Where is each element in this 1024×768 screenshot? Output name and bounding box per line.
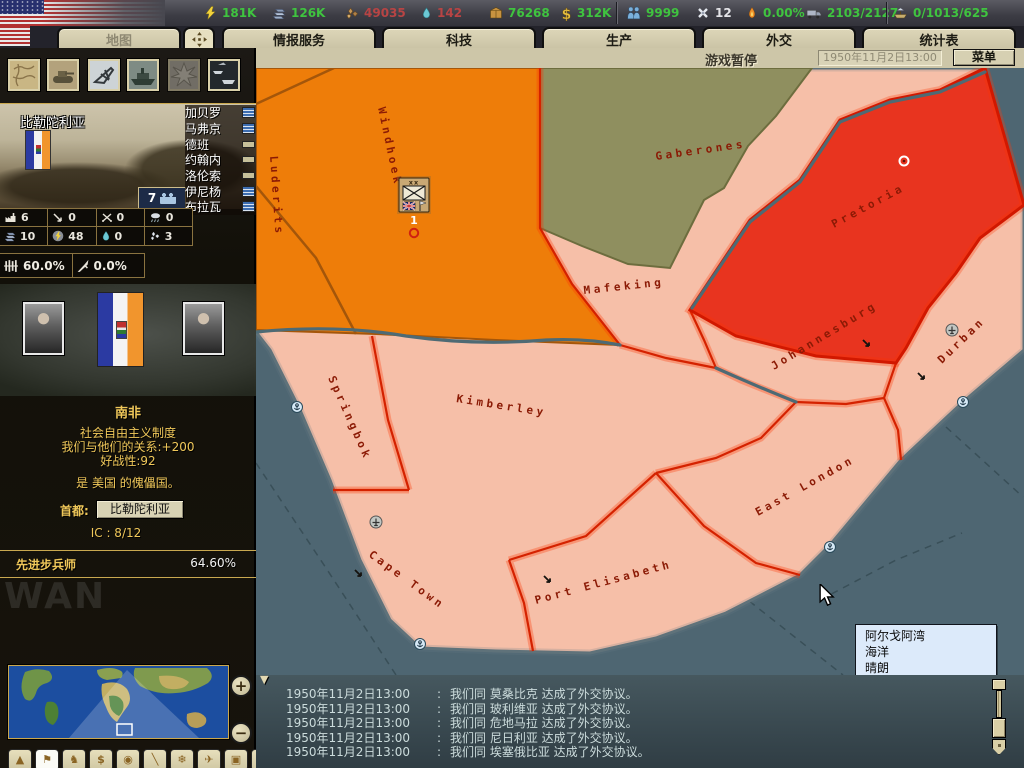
metal-icon	[272, 7, 286, 20]
pan-map-icon	[192, 32, 207, 47]
port-icon[interactable]	[958, 397, 969, 408]
tab-statistics[interactable]: 统计表	[862, 27, 1016, 50]
tab-pan-map[interactable]	[183, 27, 215, 50]
log-entry[interactable]: 1950年11月2日13:00:我们同 埃塞俄比亚 达成了外交协议。	[286, 743, 1006, 757]
country-belligerence: 好战性:92	[0, 452, 256, 469]
aa-gun-icon	[52, 212, 64, 223]
airbase-icon[interactable]	[946, 324, 958, 336]
tank-icon	[49, 61, 77, 89]
minimap-zoom-in-button[interactable]: +	[230, 675, 252, 697]
resource-transports: 12	[696, 4, 732, 22]
land-connection-icon	[242, 141, 255, 148]
air-icon: ✈	[204, 753, 213, 766]
resource-manpower: 9999	[626, 4, 679, 22]
resource-energy: 181K	[204, 4, 256, 22]
land-connection-icon	[242, 172, 255, 179]
revolt-risk-icon	[76, 259, 90, 273]
stat-oil: 0	[97, 227, 145, 246]
minister-portrait-right	[183, 302, 224, 355]
money-icon: $	[561, 6, 572, 21]
tab-technology[interactable]: 科技	[382, 27, 536, 50]
sea-zone-tooltip: 阿尔戈阿湾 海洋 晴朗	[855, 624, 997, 678]
main-tab-bar: 地图 情报服务 科技 生产 外交 统计表	[0, 26, 1024, 48]
tab-intelligence[interactable]: 情报服务	[222, 27, 376, 50]
research-progress: 64.60%	[190, 556, 236, 570]
log-scroll-track[interactable]	[996, 690, 1002, 718]
unit-count: 1	[410, 214, 418, 227]
port-icon[interactable]	[292, 402, 303, 413]
stat-revolt-risk: 0.0%	[73, 253, 146, 278]
convoy-ships-icon	[210, 61, 238, 89]
land-units-button[interactable]	[47, 59, 79, 91]
sea-connection-icon	[242, 123, 255, 134]
stat-metal: 10	[0, 227, 48, 246]
top-resource-bar: 181K 126K 49035 142 76268 $ 312K 9999	[0, 0, 1024, 27]
log-scroll-up-button[interactable]	[992, 679, 1006, 690]
mapmode-terrain-button[interactable]: ▲	[8, 749, 32, 768]
naval-units-button[interactable]	[127, 59, 159, 91]
battle-icon	[101, 212, 113, 223]
minimap-world	[9, 666, 228, 738]
message-log[interactable]: ▼ 1950年11月2日13:00:我们同 莫桑比克 达成了外交协议。 1950…	[256, 675, 1024, 768]
adjacent-province-list: 加贝罗 马弗京 德班 约翰内 洛伦索 伊尼杨 布拉瓦	[185, 105, 256, 215]
mapmode-air-button[interactable]: ✈	[197, 749, 221, 768]
province-infra-row: 60.0% 0.0%	[0, 253, 145, 278]
port-icon[interactable]	[415, 639, 426, 650]
convoys-icon	[893, 6, 908, 20]
map-viewport[interactable]: Windhoek Luderits Gaberones Pretoria Maf…	[256, 68, 1024, 675]
tooltip-terrain: 海洋	[865, 644, 996, 660]
resource-dissent: 0.00%	[746, 4, 805, 22]
stat-aa: 0	[48, 208, 96, 227]
adjacent-province-item[interactable]: 洛伦索	[185, 168, 256, 184]
transports-icon	[696, 6, 710, 20]
log-entry[interactable]: 1950年11月2日13:00:我们同 尼日利亚 达成了外交协议。	[286, 729, 1006, 743]
mapmode-weather-button[interactable]: ❄	[170, 749, 194, 768]
rare-materials-icon	[149, 231, 161, 242]
adjacent-province-item[interactable]: 布拉瓦	[185, 199, 256, 215]
resource-transport-capacity: 2103/2127	[806, 4, 898, 22]
tab-production[interactable]: 生产	[542, 27, 696, 50]
resource-metal: 126K	[272, 4, 325, 22]
log-entry[interactable]: 1950年11月2日13:00:我们同 玻利维亚 达成了外交协议。	[286, 700, 1006, 714]
capital-button[interactable]: 比勒陀利亚	[96, 500, 184, 519]
svg-text:$: $	[562, 6, 572, 20]
tab-diplomacy[interactable]: 外交	[702, 27, 856, 50]
province-stats: 6 0 0 0 10 48	[0, 208, 193, 246]
country-puppet-note: 是 美国 的傀儡国。	[0, 474, 256, 491]
mapmode-economy-button[interactable]: $	[89, 749, 113, 768]
terrain-icon: ▲	[16, 753, 24, 766]
division-count: 7	[148, 191, 156, 205]
supplies-icon	[489, 6, 503, 20]
tooltip-weather: 晴朗	[865, 660, 996, 676]
weather-icon: ❄	[177, 753, 186, 766]
tooltip-sea-name: 阿尔戈阿湾	[865, 628, 996, 644]
resource-rare-materials: 49035	[345, 4, 406, 22]
sea-connection-icon	[242, 186, 255, 197]
rare-materials-icon	[345, 7, 359, 20]
menu-button[interactable]: 菜单	[953, 49, 1015, 66]
convoys-button[interactable]	[208, 59, 240, 91]
stat-rare-materials: 3	[145, 227, 193, 246]
tab-map[interactable]: 地图	[57, 27, 181, 50]
country-name: 南非	[0, 402, 256, 421]
resource-supplies: 76268	[489, 4, 550, 22]
map-icon	[10, 61, 38, 89]
mapmode-supply-button[interactable]: ▣	[224, 749, 248, 768]
mapmode-army-button[interactable]: ♞	[62, 749, 86, 768]
mapmode-revolt-button[interactable]: ╲	[143, 749, 167, 768]
stat-battles: 0	[97, 208, 145, 227]
sea-connection-icon	[242, 201, 255, 212]
economy-icon: $	[97, 753, 105, 766]
transport-capacity-icon	[806, 6, 822, 20]
province-sidebar: 比勒陀利亚 7 加贝罗 马弗京 德班 约翰内 洛伦索 伊尼杨 布拉瓦 6	[0, 48, 256, 768]
adjacent-province-item[interactable]: 约翰内	[185, 152, 256, 168]
game-window: 181K 126K 49035 142 76268 $ 312K 9999	[0, 0, 1024, 768]
date-display: 1950年11月2日13:00	[818, 50, 942, 66]
map-view-button[interactable]	[8, 59, 40, 91]
factory-icon	[4, 212, 17, 223]
warship-icon	[129, 61, 157, 89]
topbar-separator	[616, 2, 617, 24]
topbar-separator	[886, 2, 887, 24]
mapmode-resources-button[interactable]: ◉	[116, 749, 140, 768]
log-scroll-handle[interactable]	[992, 718, 1006, 738]
land-connection-icon	[242, 156, 255, 163]
manpower-icon	[626, 6, 641, 20]
background-watermark: WAN	[4, 576, 106, 617]
infantry-icon	[160, 192, 176, 204]
battles-button[interactable]	[168, 59, 200, 91]
stat-energy: 48	[48, 227, 96, 246]
revolt-icon: ╲	[152, 753, 159, 766]
minimap-zoom-out-button[interactable]: −	[230, 722, 252, 744]
unit-flag-uk	[403, 202, 415, 210]
army-icon: ♞	[69, 753, 79, 766]
adjacent-province-item[interactable]: 马弗京	[185, 121, 256, 137]
battle-burst-icon	[170, 61, 198, 89]
supply-icon: ▣	[231, 753, 241, 766]
oil-icon	[421, 6, 432, 20]
metal-icon	[4, 231, 16, 242]
resource-convoys: 0/1013/625	[893, 4, 989, 22]
dissent-flame-icon	[746, 6, 758, 20]
adjacent-province-item[interactable]: 伊尼杨	[185, 183, 256, 199]
mouse-cursor	[818, 584, 836, 606]
stat-ic: 6	[0, 208, 48, 227]
map-toolbar: 游戏暂停 1950年11月2日13:00 菜单	[256, 48, 1024, 70]
log-entry[interactable]: 1950年11月2日13:00:我们同 危地马拉 达成了外交协议。	[286, 714, 1006, 728]
log-entry[interactable]: 1950年11月2日13:00:我们同 莫桑比克 达成了外交协议。	[286, 685, 1006, 699]
map-mode-buttons: ▲ ⚑ ♞ $ ◉ ╲ ❄ ✈ ▣ ●	[8, 749, 275, 768]
minister-portrait-left	[23, 302, 64, 355]
air-units-button[interactable]	[88, 59, 120, 91]
adjacent-province-item[interactable]: 加贝罗	[185, 105, 256, 121]
research-name[interactable]: 先进步兵师	[16, 556, 76, 573]
stat-infrastructure: 60.0%	[0, 253, 73, 278]
resource-money: $ 312K	[561, 4, 611, 22]
capital-label: 首都:	[60, 502, 89, 519]
player-flag-usa	[0, 0, 165, 26]
minimap[interactable]	[8, 665, 229, 739]
log-collapse-icon[interactable]: ▼	[260, 673, 268, 686]
province-name: 比勒陀利亚	[20, 112, 85, 131]
political-flag-icon: ⚑	[42, 753, 52, 766]
port-icon[interactable]	[825, 542, 836, 553]
divider	[0, 550, 256, 551]
oil-icon	[101, 230, 111, 242]
province-owner-flag	[25, 130, 51, 170]
airbase-icon[interactable]	[370, 516, 382, 528]
sea-connection-icon	[242, 107, 255, 118]
country-ic: IC : 8/12	[0, 526, 244, 540]
infrastructure-icon	[3, 259, 19, 273]
airplane-icon	[90, 61, 118, 89]
country-flag	[97, 292, 144, 367]
unit-echelon: xx	[409, 179, 419, 187]
resource-oil: 142	[421, 4, 462, 22]
government-block	[0, 284, 256, 396]
mapmode-political-button[interactable]: ⚑	[35, 749, 59, 768]
storm-icon	[149, 212, 162, 223]
energy-icon	[52, 230, 64, 242]
pause-indicator: 游戏暂停	[705, 50, 757, 69]
adjacent-province-item[interactable]: 德班	[185, 136, 256, 152]
division-count-box[interactable]: 7	[138, 187, 186, 209]
player-flag-stub	[0, 26, 30, 46]
stat-weather: 0	[145, 208, 193, 227]
energy-icon	[204, 6, 217, 20]
resources-icon: ◉	[123, 753, 133, 766]
